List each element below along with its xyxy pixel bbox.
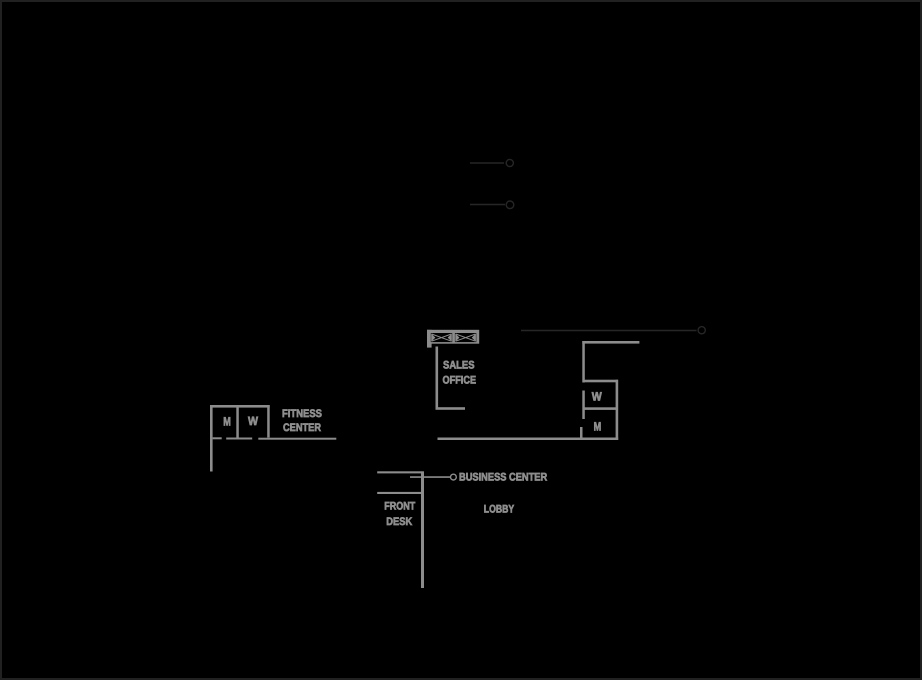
svg-text:W: W	[592, 389, 603, 403]
svg-text:DESK: DESK	[386, 516, 412, 528]
svg-text:M: M	[223, 414, 231, 428]
svg-text:W: W	[248, 414, 259, 428]
svg-text:OFFICE: OFFICE	[443, 374, 477, 386]
svg-text:SALES: SALES	[443, 360, 475, 372]
svg-text:LOBBY: LOBBY	[484, 503, 515, 515]
svg-text:M: M	[594, 419, 602, 433]
svg-text:FITNESS: FITNESS	[282, 408, 322, 420]
svg-text:CENTER: CENTER	[283, 422, 321, 434]
svg-text:BUSINESS CENTER: BUSINESS CENTER	[459, 471, 547, 483]
svg-text:FRONT: FRONT	[384, 500, 415, 512]
